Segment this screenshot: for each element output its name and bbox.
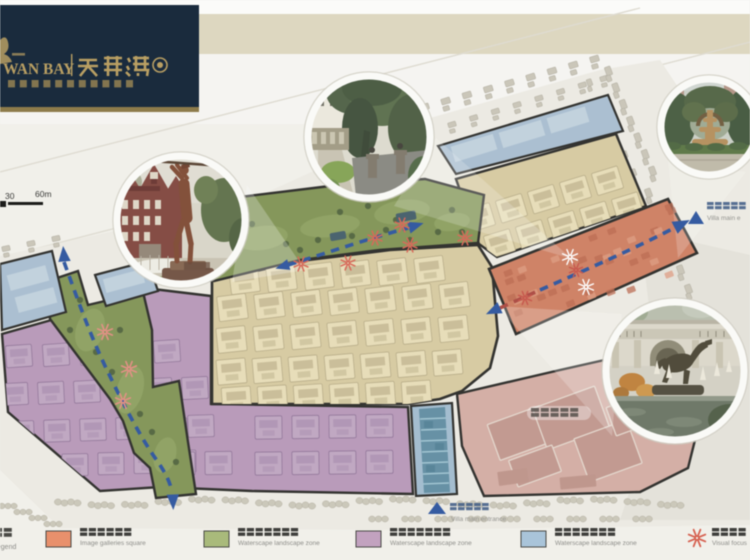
svg-text:Waterscape landscape zone: Waterscape landscape zone [238, 540, 320, 547]
svg-text:WAN BAY: WAN BAY [3, 61, 74, 78]
svg-text:60m: 60m [35, 189, 52, 199]
svg-text:Waterscape landscape zone: Waterscape landscape zone [390, 540, 472, 547]
svg-text:Image galleries square: Image galleries square [80, 540, 146, 547]
svg-text:Visual focus: Visual focus [712, 540, 748, 547]
svg-text:Waterscape landscape zone: Waterscape landscape zone [555, 540, 637, 547]
svg-text:Legend: Legend [0, 544, 16, 551]
svg-text:30: 30 [5, 191, 15, 201]
